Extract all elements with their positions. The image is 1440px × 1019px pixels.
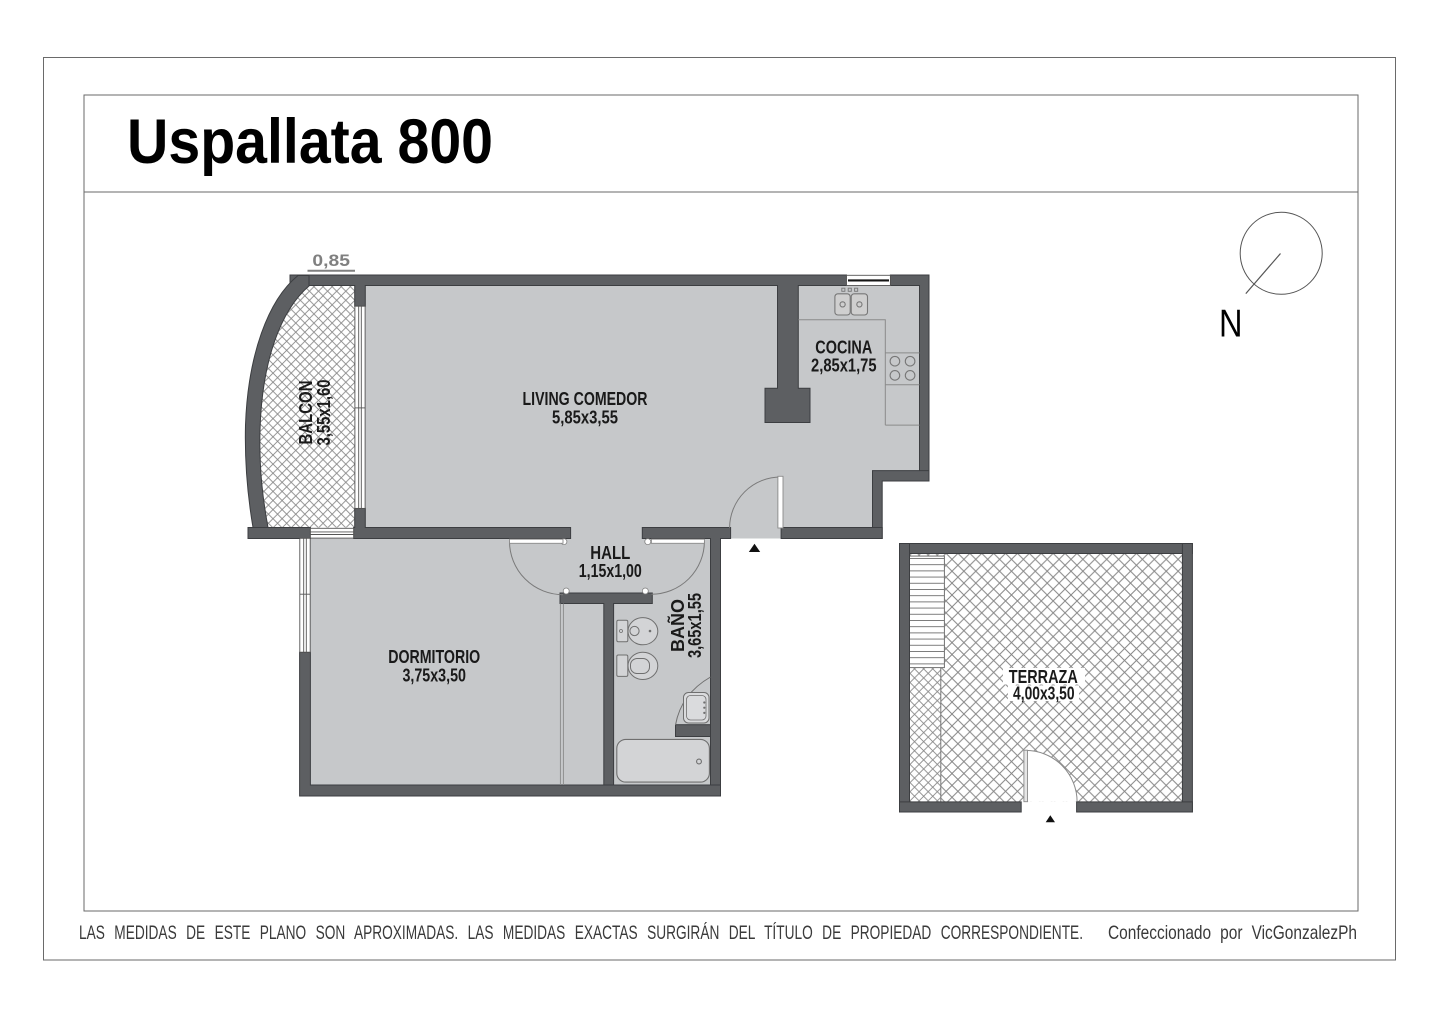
svg-text:3,55x1,60: 3,55x1,60: [314, 380, 334, 446]
svg-text:HALL: HALL: [590, 543, 630, 563]
svg-text:4,00x3,50: 4,00x3,50: [1013, 684, 1075, 704]
svg-text:0,85: 0,85: [312, 251, 350, 270]
svg-text:Uspallata 800: Uspallata 800: [127, 107, 493, 177]
svg-text:1,15x1,00: 1,15x1,00: [579, 561, 642, 581]
svg-text:DORMITORIO: DORMITORIO: [388, 647, 480, 667]
svg-text:BALCON: BALCON: [296, 381, 316, 445]
svg-text:LAS MEDIDAS DE ESTE PLANO SON: LAS MEDIDAS DE ESTE PLANO SON APROXIMADA…: [79, 921, 1083, 944]
svg-text:5,85x3,55: 5,85x3,55: [552, 408, 618, 428]
svg-text:LIVING COMEDOR: LIVING COMEDOR: [523, 389, 648, 409]
svg-text:2,85x1,75: 2,85x1,75: [811, 356, 877, 376]
svg-text:N: N: [1219, 303, 1243, 346]
svg-text:3,75x3,50: 3,75x3,50: [402, 666, 466, 686]
svg-text:Confeccionado por VicGonzalezP: Confeccionado por VicGonzalezPh: [1108, 922, 1357, 944]
svg-text:3,65x1,55: 3,65x1,55: [685, 593, 705, 658]
svg-text:COCINA: COCINA: [815, 338, 872, 358]
